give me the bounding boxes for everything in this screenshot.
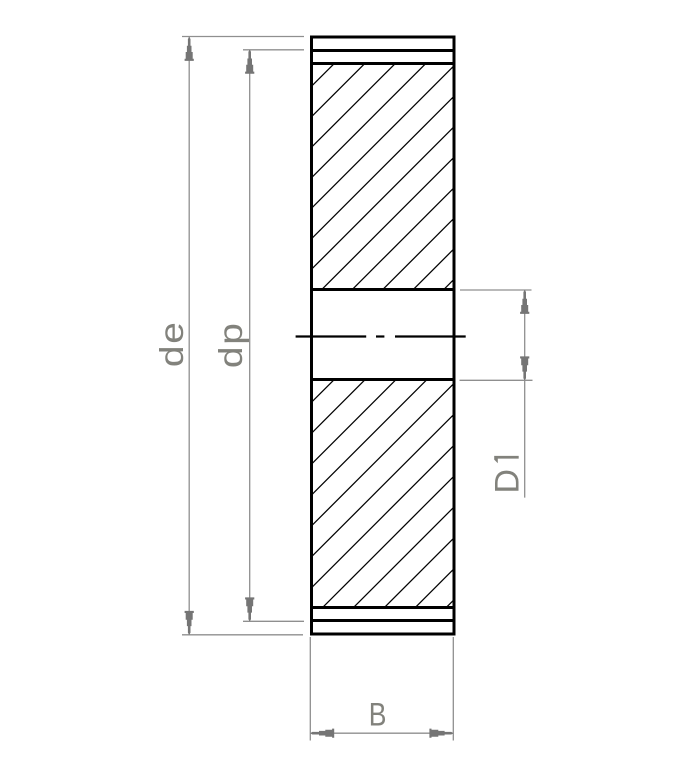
- svg-text:de: de: [153, 320, 191, 367]
- svg-text:D: D: [489, 469, 527, 494]
- svg-text:B: B: [369, 697, 387, 733]
- svg-text:dp: dp: [212, 321, 250, 368]
